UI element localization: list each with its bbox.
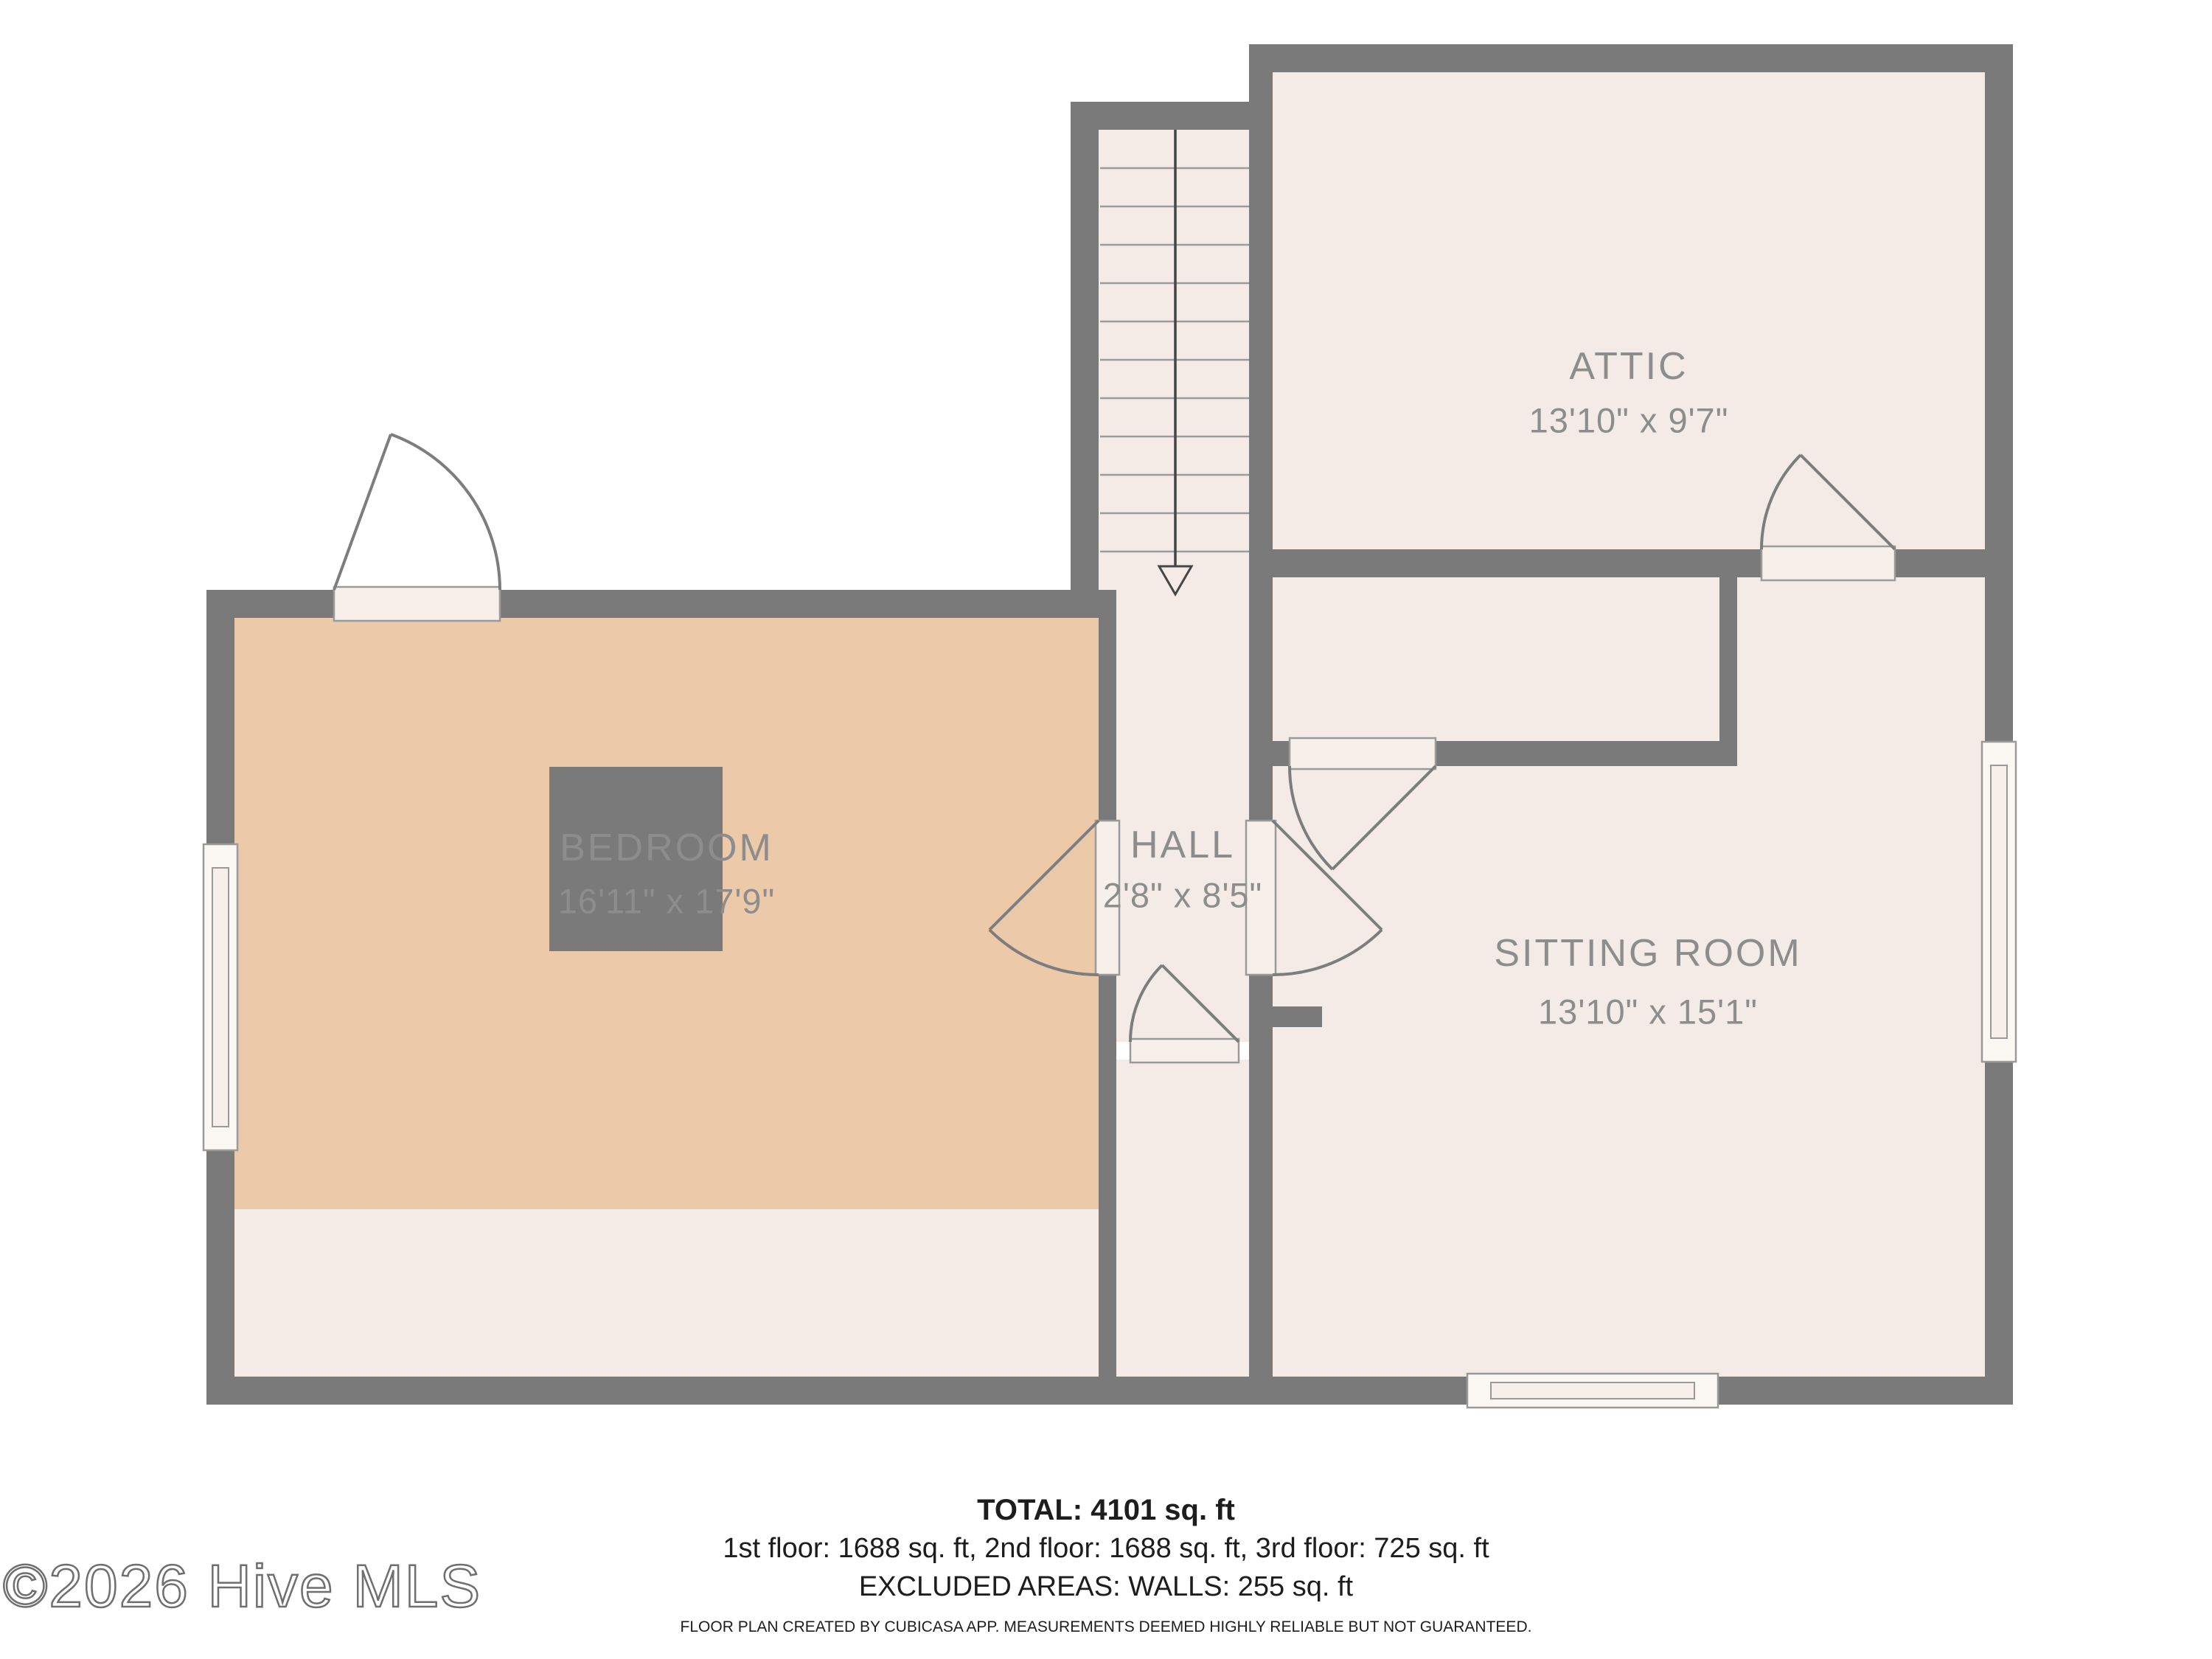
bedroom-window-glazing [212,868,229,1127]
stairwell-top-wall [1071,102,1273,130]
mls-watermark: ©2026 Hive MLS [3,1552,481,1621]
hall-label: HALL [1130,823,1235,867]
attic-door-sill [1761,546,1895,580]
nook-right-wall [1719,577,1737,741]
bedroom-dimensions: 16'11" x 17'9" [558,881,775,922]
hall-right-wall-lower [1249,975,1273,1377]
hall-lower-corridor-floor [1116,1060,1249,1377]
stairwell-left-wall [1071,102,1099,618]
hall-left-wall-lower [1099,975,1116,1377]
sitting-room-right-window-glazing [1991,765,2007,1038]
bedroom-label: BEDROOM [560,826,773,870]
attic-label: ATTIC [1569,344,1688,389]
sitting-room-dimensions: 13'10" x 15'1" [1538,992,1758,1032]
attic-bottom-wall-left [1273,549,1761,577]
sitting-room-label: SITTING ROOM [1494,931,1801,975]
bedroom-top-wall-left [206,590,334,618]
bedroom-low-ceiling-floor [234,1209,1099,1377]
hall-left-wall-upper [1099,618,1116,821]
bedroom-exterior-door-sill [334,587,500,621]
right-outer-wall-lower [1985,1062,2013,1405]
total-area-text: TOTAL: 4101 sq. ft [0,1491,2212,1529]
bedroom-top-wall-right [500,590,1116,618]
right-outer-wall-upper [1985,44,2013,742]
bedroom-exterior-door-swing [334,434,500,590]
attic-floor [1273,72,1985,549]
nook-bottom-wall-left [1273,741,1290,766]
bottom-outer-wall-right [1718,1377,2013,1405]
bottom-outer-wall-left [206,1377,1467,1405]
hall-dimensions: 2'8" x 8'5" [1103,875,1263,916]
hall-right-wall-upper [1249,72,1273,821]
nook-bottom-wall-right [1436,741,1737,766]
nook-door-sill [1290,738,1436,769]
hall-bottom-door-sill [1130,1039,1239,1062]
sitting-room-bottom-window-glazing [1491,1382,1694,1399]
sitting-room-wall-stub [1273,1006,1322,1027]
sitting-room-floor [1273,577,1985,1377]
floor-plan-drawing [0,0,2212,1659]
left-outer-wall-upper [206,590,234,844]
left-outer-wall-lower [206,1150,234,1405]
attic-dimensions: 13'10" x 9'7" [1529,400,1729,441]
attic-bottom-wall-right [1895,549,1985,577]
attic-top-wall [1249,44,2013,72]
floor-plan-page: BEDROOM 16'11" x 17'9" HALL 2'8" x 8'5" … [0,0,2212,1659]
